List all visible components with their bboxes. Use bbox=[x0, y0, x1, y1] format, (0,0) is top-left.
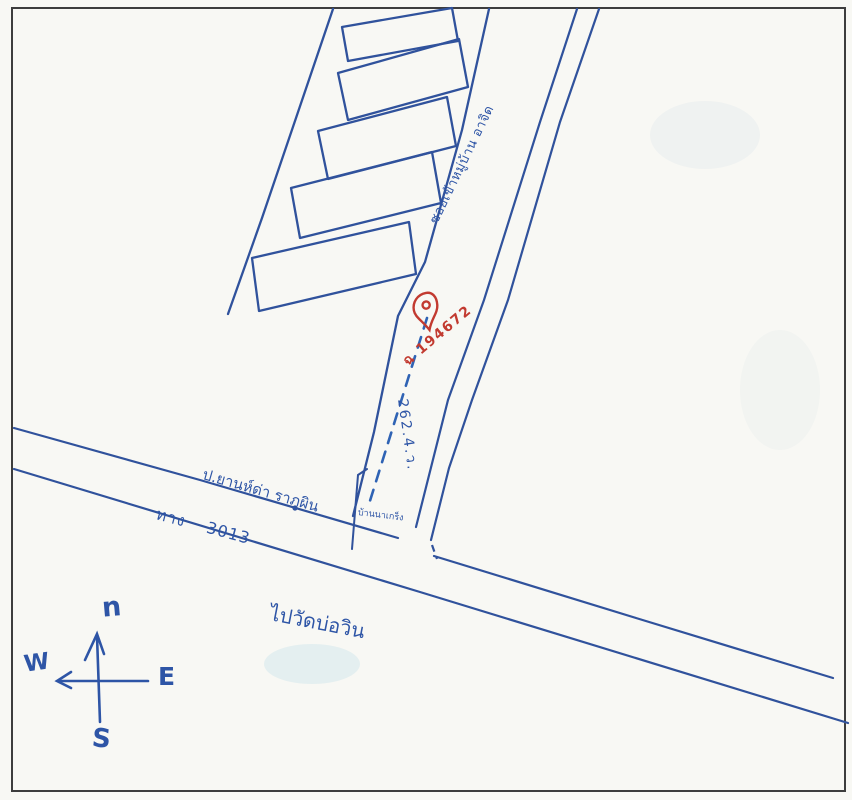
plot-rect bbox=[252, 222, 416, 311]
ladder-rail-left bbox=[228, 9, 333, 314]
compass-north-label: n bbox=[101, 591, 123, 624]
scanned-map: ซอยเข้าหมู่บ้าน อาจิด ฉ 194672 262.4.ว. … bbox=[0, 0, 852, 800]
location-pin-icon bbox=[411, 291, 441, 332]
compass-vertical-axis bbox=[97, 636, 100, 722]
compass-north-arrowhead bbox=[85, 634, 104, 660]
junction-plot-box bbox=[352, 469, 367, 549]
compass-south-label: S bbox=[90, 723, 112, 755]
compass-rose bbox=[57, 634, 148, 722]
main-road-bottom-line bbox=[14, 469, 848, 723]
main-road-top-left-line bbox=[14, 428, 398, 538]
plot-grid bbox=[252, 8, 468, 311]
landmark-dot bbox=[292, 505, 297, 510]
soi-road-left-line bbox=[416, 9, 577, 527]
map-drawing bbox=[0, 0, 852, 800]
soi-road-right-line bbox=[431, 9, 599, 540]
plot-rect bbox=[291, 152, 441, 238]
main-road-top-right-line bbox=[434, 556, 833, 678]
scan-smudge bbox=[264, 101, 820, 684]
plot-rect bbox=[342, 8, 458, 61]
compass-east-label: E bbox=[158, 662, 175, 691]
compass-west-label: W bbox=[22, 648, 51, 677]
